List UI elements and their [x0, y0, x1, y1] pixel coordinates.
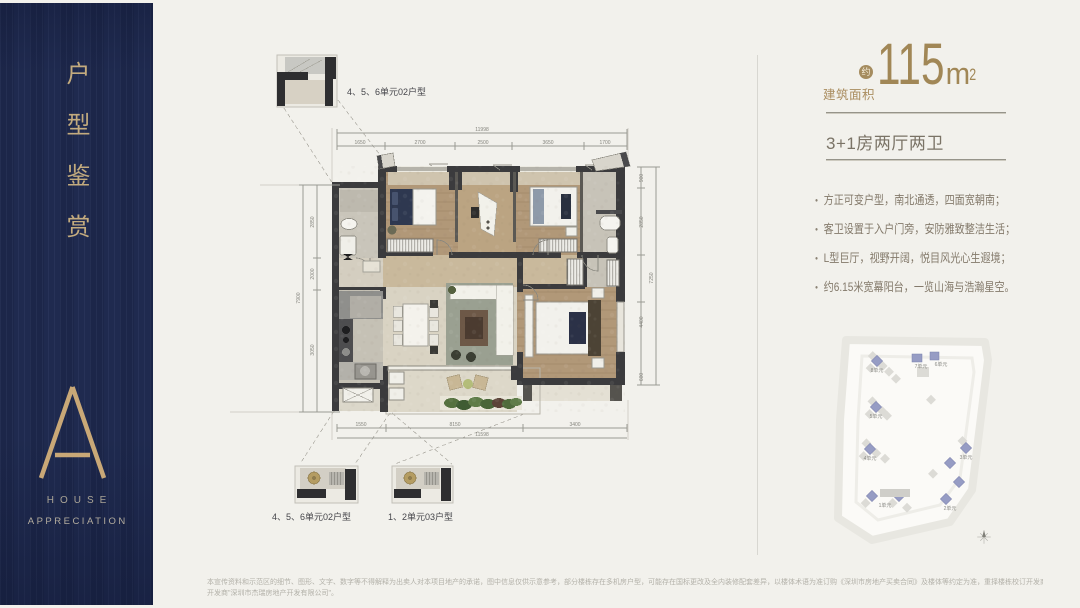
svg-text:6单元: 6单元 [935, 361, 948, 368]
svg-text:8单元: 8单元 [871, 367, 884, 374]
svg-text:5单元: 5单元 [870, 413, 883, 420]
svg-text:3单元: 3单元 [960, 454, 973, 461]
svg-text:2单元: 2单元 [944, 505, 957, 512]
svg-text:4单元: 4单元 [864, 455, 877, 462]
svg-text:1单元: 1单元 [879, 502, 892, 509]
svg-text:7单元: 7单元 [915, 363, 928, 370]
